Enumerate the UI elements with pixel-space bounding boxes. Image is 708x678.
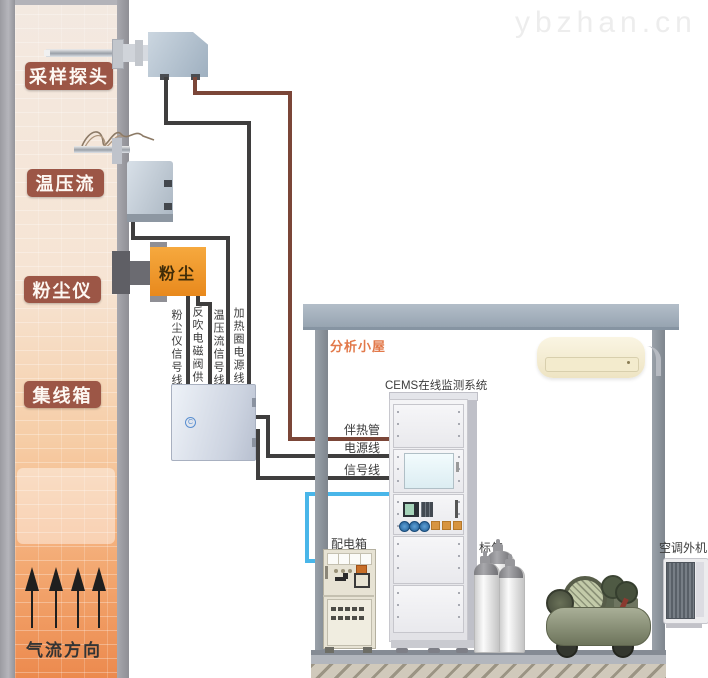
tpf-button bbox=[164, 180, 172, 187]
power-box-switch-lever bbox=[343, 573, 348, 579]
gas-cylinder bbox=[499, 566, 525, 653]
label-power-line: 电源线 bbox=[344, 439, 380, 456]
junction-box-hinge bbox=[252, 438, 256, 447]
cabinet-foot bbox=[428, 648, 440, 653]
terminal bbox=[345, 607, 350, 611]
power-box-indicator bbox=[334, 569, 338, 573]
analyzer-keypad bbox=[421, 502, 433, 517]
tpf-transmitter-box bbox=[127, 161, 173, 222]
wire-segment bbox=[186, 296, 190, 387]
stack-top-cap bbox=[15, 0, 117, 5]
tpf-box-base bbox=[127, 214, 173, 222]
sampling-probe-unit bbox=[148, 32, 208, 77]
wire-segment bbox=[164, 121, 251, 125]
analyzer-fitting bbox=[442, 521, 451, 530]
cems-cabinet-title: CEMS在线监测系统 bbox=[385, 377, 487, 393]
cable-label-heater-power: 加热圈电源线 bbox=[232, 307, 243, 385]
stack-faded-panel bbox=[17, 468, 115, 544]
terminal bbox=[338, 616, 343, 620]
terminal bbox=[352, 607, 357, 611]
power-box-meter bbox=[354, 573, 370, 588]
cabinet-blank-panel bbox=[393, 585, 464, 633]
label-temp-pressure-flow: 温压流 bbox=[27, 169, 104, 197]
dust-meter-arm bbox=[130, 261, 152, 285]
airflow-arrow-icon bbox=[25, 567, 39, 591]
tpf-button bbox=[164, 203, 172, 210]
wire-segment bbox=[226, 236, 230, 387]
cabinet-screen bbox=[404, 453, 454, 489]
cable-label-tpf-signal: 温压流信号线 bbox=[212, 309, 223, 387]
power-box-slot bbox=[325, 566, 328, 579]
stack-right-edge bbox=[117, 0, 129, 678]
cabinet-foot bbox=[456, 648, 468, 653]
label-heat-trace: 伴热管 bbox=[344, 421, 380, 438]
airflow-arrow-stem bbox=[55, 589, 57, 628]
gas-cylinder bbox=[474, 563, 500, 653]
airflow-arrow-stem bbox=[31, 589, 33, 628]
label-signal-line: 信号线 bbox=[344, 461, 380, 478]
terminal bbox=[359, 616, 364, 620]
heat-trace-segment bbox=[288, 91, 292, 441]
ac-indoor-vent bbox=[545, 357, 639, 372]
ac-outdoor-bracket bbox=[666, 624, 702, 628]
wire-segment bbox=[256, 429, 260, 480]
junction-box-hinge bbox=[252, 398, 256, 407]
label-junction-box: 集线箱 bbox=[24, 381, 101, 408]
cabinet-blank-panel bbox=[393, 536, 464, 584]
power-box-indicator bbox=[348, 569, 352, 573]
label-dust-meter: 粉尘仪 bbox=[24, 276, 101, 303]
ac-indoor-indicator bbox=[627, 361, 630, 364]
terminal bbox=[345, 616, 350, 620]
dust-meter-wall-plate bbox=[112, 251, 130, 294]
power-box-divider bbox=[323, 595, 374, 597]
gas-cylinder-shoulder bbox=[499, 566, 523, 578]
terminal bbox=[338, 607, 343, 611]
cabinet-screen-buttons bbox=[456, 462, 459, 472]
airflow-arrow-stem bbox=[98, 589, 100, 628]
terminal bbox=[331, 607, 336, 611]
ground-hatch bbox=[311, 664, 666, 678]
cable-label-dust-signal: 粉尘仪信号线 bbox=[170, 309, 181, 387]
shed-title: 分析小屋 bbox=[330, 336, 386, 355]
airflow-arrow-icon bbox=[92, 567, 106, 591]
label-sampling-probe: 采样探头 bbox=[25, 62, 113, 90]
probe-fitting bbox=[135, 40, 143, 66]
wire-segment bbox=[247, 121, 251, 387]
cabinet-blank-panel bbox=[393, 404, 464, 448]
wire-segment bbox=[164, 77, 168, 124]
ac-outdoor-side bbox=[696, 562, 704, 617]
junction-box-logo: C bbox=[185, 417, 196, 428]
shed-floor bbox=[311, 655, 666, 664]
wire-segment bbox=[266, 415, 270, 458]
shed-roof bbox=[303, 304, 679, 330]
airflow-arrow-stem bbox=[77, 589, 79, 628]
dust-meter-unit: 粉尘 bbox=[150, 247, 206, 296]
heat-trace-segment bbox=[193, 91, 292, 95]
ac-outdoor-grille bbox=[666, 562, 695, 619]
probe-tube bbox=[46, 49, 118, 57]
airflow-arrow-icon bbox=[71, 567, 85, 591]
probe-fitting bbox=[123, 44, 135, 62]
power-box-breaker bbox=[360, 553, 372, 565]
ac-outdoor-title: 空调外机 bbox=[659, 539, 707, 556]
power-box-foot bbox=[325, 647, 334, 653]
analyzer-gauge bbox=[455, 500, 458, 518]
wire-segment bbox=[131, 236, 230, 240]
junction-box bbox=[171, 384, 256, 461]
cems-system-diagram: ybzhan.cn 气流方向 采样探头 温压流 粉尘仪 集线箱 粉尘 bbox=[0, 0, 708, 678]
terminal bbox=[352, 616, 357, 620]
analyzer-display-screen bbox=[405, 504, 414, 515]
probe-tip bbox=[44, 50, 50, 56]
airflow-direction-label: 气流方向 bbox=[26, 636, 102, 661]
tpf-wall-plate bbox=[112, 138, 122, 164]
power-box-foot bbox=[363, 647, 372, 653]
watermark: ybzhan.cn bbox=[515, 6, 697, 40]
compressor-tank bbox=[546, 607, 651, 646]
blue-wire-segment bbox=[305, 492, 309, 563]
airflow-arrow-icon bbox=[49, 567, 63, 591]
terminal bbox=[331, 616, 336, 620]
analyzer-fitting bbox=[431, 521, 440, 530]
stack-left-edge bbox=[0, 0, 15, 678]
analyzer-knob bbox=[419, 521, 430, 532]
analyzer-fitting bbox=[453, 521, 462, 530]
terminal bbox=[359, 607, 364, 611]
gas-cylinder-shoulder bbox=[474, 563, 498, 575]
cabinet-base bbox=[391, 640, 475, 648]
cabinet-foot bbox=[396, 648, 408, 653]
